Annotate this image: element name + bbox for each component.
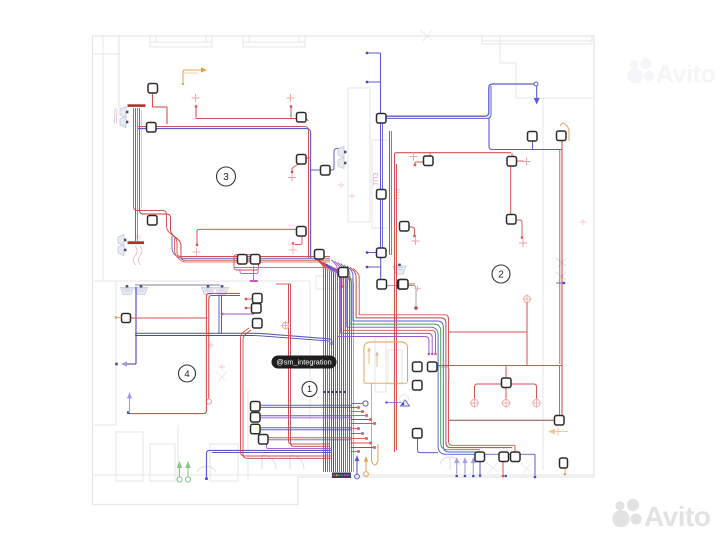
svg-text:1: 1 xyxy=(307,384,312,394)
svg-text:Avito: Avito xyxy=(656,60,716,88)
svg-text:4: 4 xyxy=(184,369,189,380)
svg-text:@sm_integration: @sm_integration xyxy=(276,358,331,367)
svg-text:3: 3 xyxy=(223,172,229,183)
svg-text:Avito: Avito xyxy=(644,501,711,532)
svg-text:ТПЗ: ТПЗ xyxy=(373,172,380,186)
svg-text:2: 2 xyxy=(498,270,504,281)
